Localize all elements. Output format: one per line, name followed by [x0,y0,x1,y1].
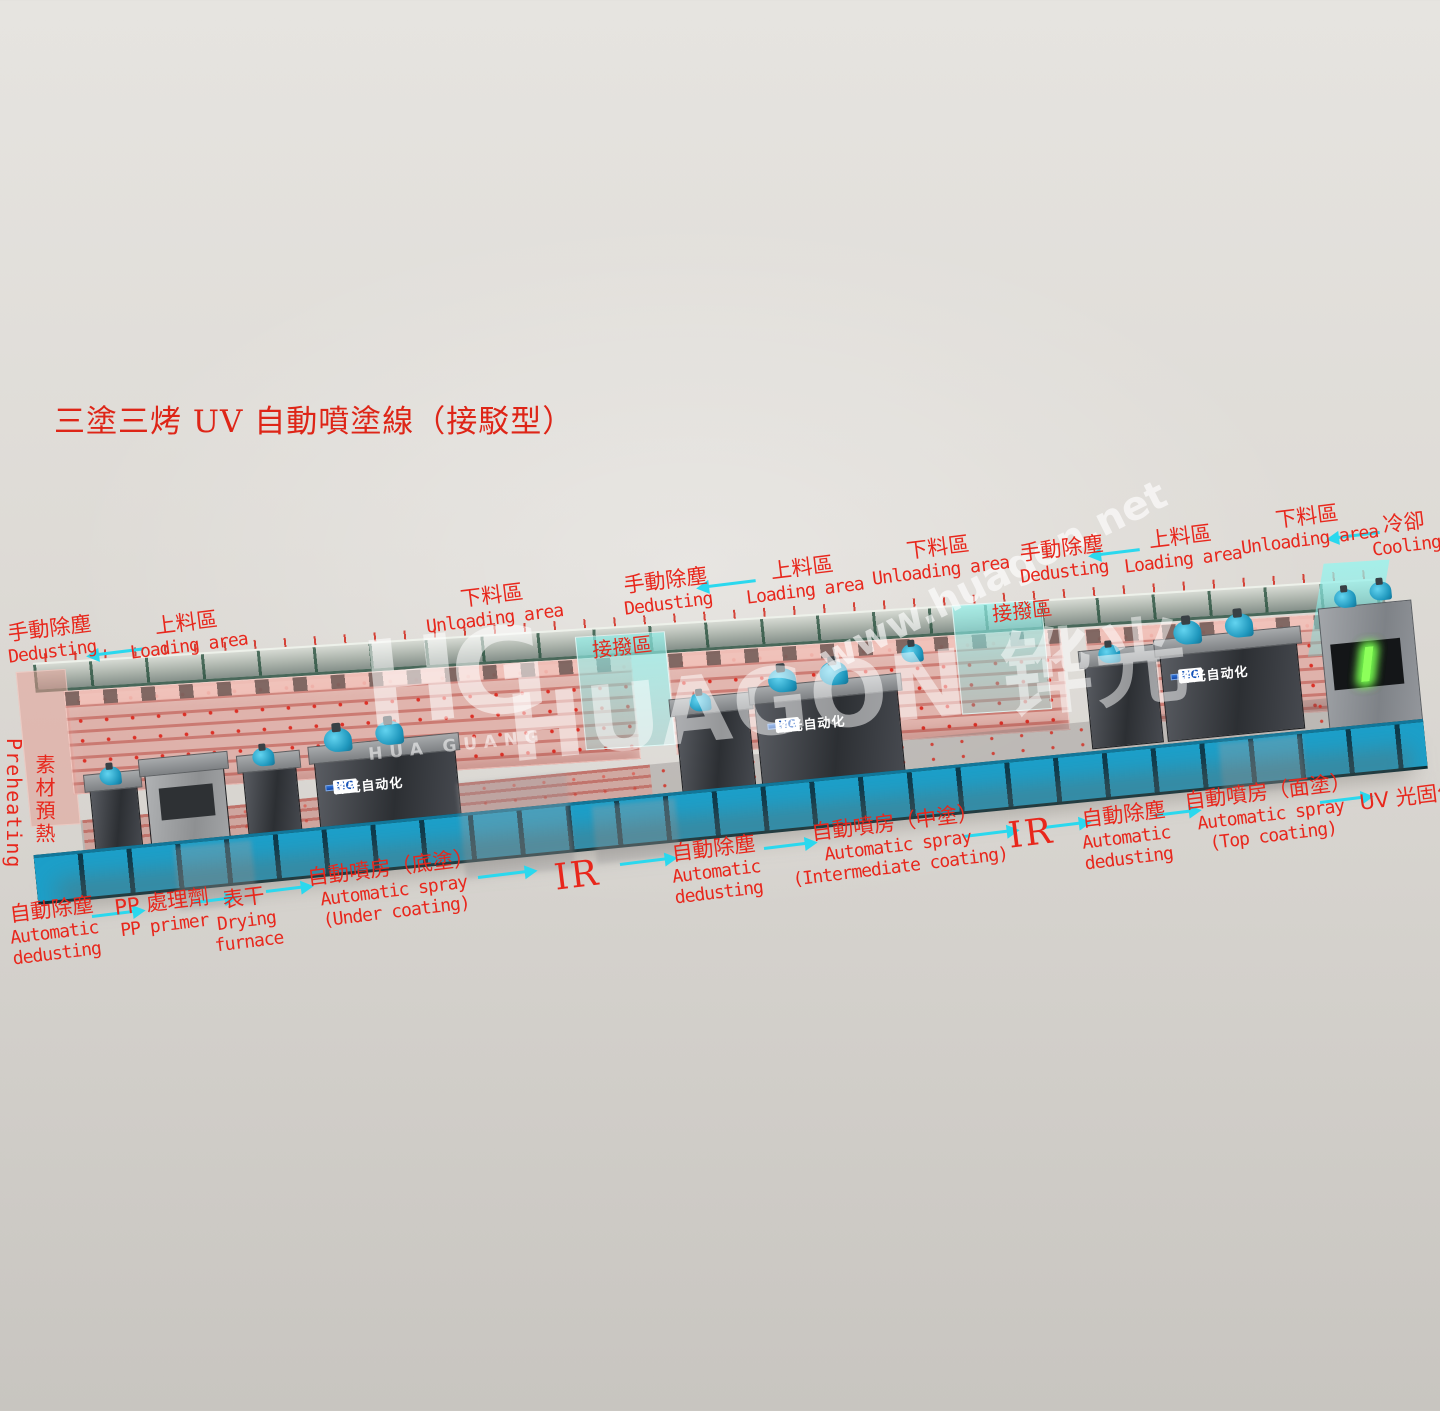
fan-icon [818,655,851,688]
booth-sign: HG 铧光自动化 [1170,673,1187,681]
fan-icon [900,639,926,665]
fan-icon [374,714,407,747]
fan-icon [1368,577,1394,603]
label-cooling: 冷卻Cooling [1368,507,1440,561]
booth-sign: HG 铧光自动化 [767,722,784,730]
fan-icon [1333,584,1359,610]
dedusting-booth [675,705,757,796]
booth-sign: HG 铧光自动化 [325,784,342,792]
uv-lamps [1330,638,1404,691]
label-auto-dedusting-3: 自動除塵Automaticdedusting [1078,797,1174,875]
fan-icon [1223,607,1256,640]
spray-booth: HG 铧光自动化 [1159,639,1305,742]
page-title: 三塗三烤 UV 自動噴塗線（接駁型） [54,396,574,441]
label-auto-dedusting-2: 自動除塵Automaticdedusting [668,831,764,909]
label-ir-2: IR [1006,810,1056,858]
label-auto-dedusting-1: 自動除塵Automaticdedusting [6,892,102,970]
fan-icon [766,662,799,695]
label-ir-1: IR [552,852,602,900]
page: { "title": "三塗三烤 UV 自動噴塗線（接駁型）", "waterm… [0,0,1440,1411]
fan-icon [322,721,355,754]
dedusting-booth [1084,657,1164,750]
label-drying-furnace: 表干Dryingfurnace [208,882,285,957]
fan-icon [1172,614,1205,647]
fan-icon [688,688,714,714]
fan-icon [251,742,277,768]
label-preheating: Preheating 素材預熱 [2,738,146,868]
fan-icon [1097,639,1123,665]
uv-curing-unit [1318,599,1424,736]
drying-furnace [242,763,303,840]
